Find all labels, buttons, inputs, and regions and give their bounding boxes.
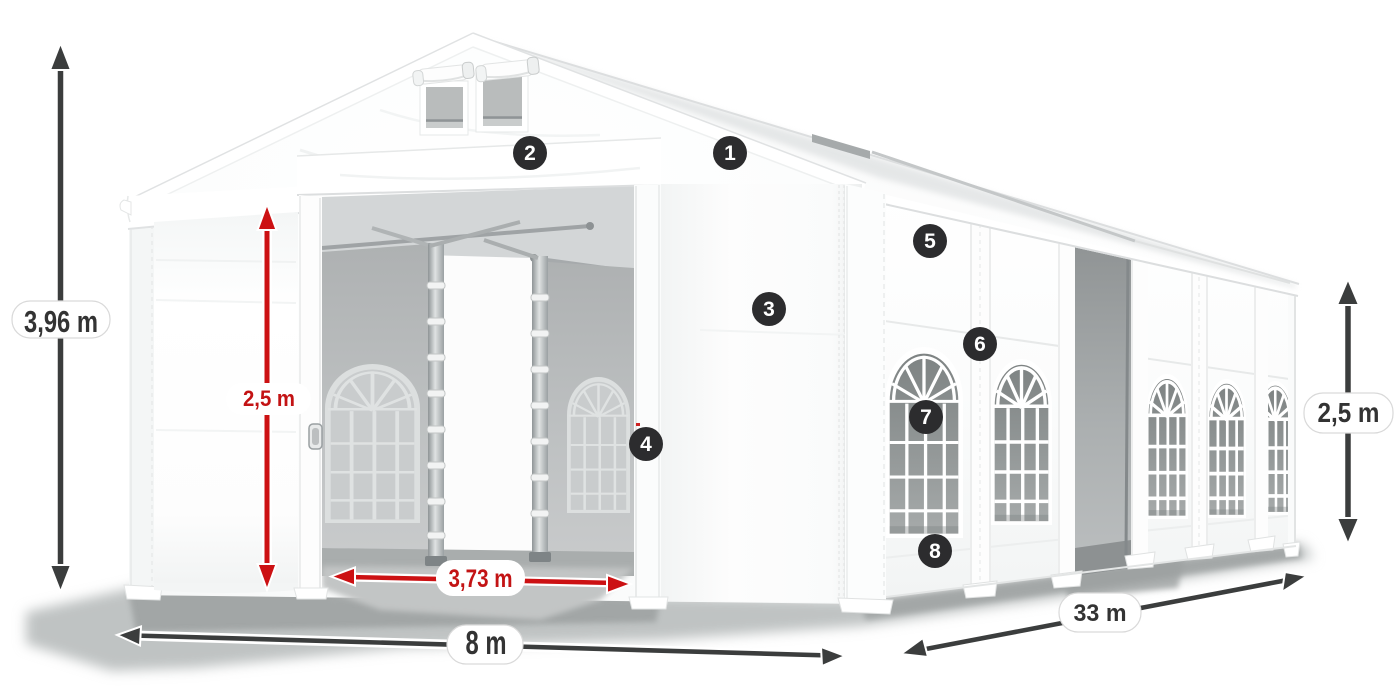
svg-text:5: 5	[924, 230, 936, 253]
svg-text:2,5 m: 2,5 m	[243, 386, 295, 411]
svg-text:6: 6	[974, 333, 986, 356]
svg-text:4: 4	[640, 433, 652, 456]
svg-text:8 m: 8 m	[466, 624, 507, 661]
svg-text:8: 8	[929, 540, 941, 563]
svg-text:2: 2	[524, 142, 536, 165]
svg-text:3,96 m: 3,96 m	[24, 304, 98, 339]
svg-text:2,5 m: 2,5 m	[1318, 397, 1380, 428]
svg-text:3,73 m: 3,73 m	[449, 565, 513, 593]
svg-text:7: 7	[920, 406, 932, 429]
svg-text:3: 3	[763, 298, 775, 321]
svg-text:33 m: 33 m	[1074, 600, 1127, 627]
svg-text:1: 1	[724, 142, 736, 165]
